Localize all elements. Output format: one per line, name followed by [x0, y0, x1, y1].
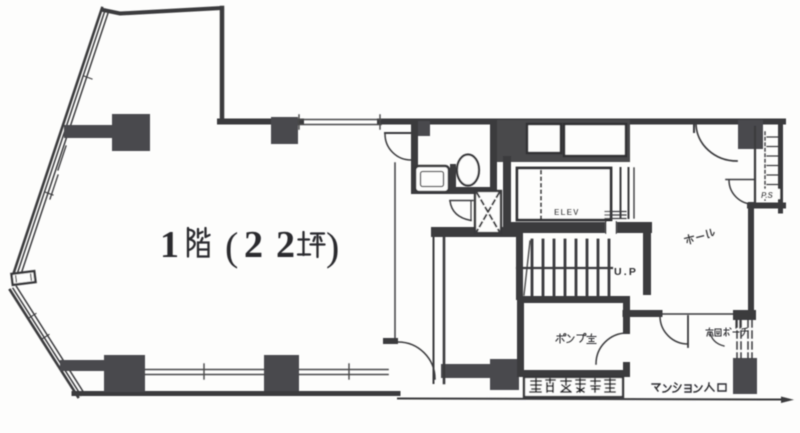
svg-text:2: 2	[276, 224, 295, 266]
svg-text:2: 2	[244, 224, 263, 266]
svg-text:ELEV: ELEV	[554, 208, 580, 217]
svg-text:P.S: P.S	[761, 191, 774, 200]
svg-text:1: 1	[160, 224, 179, 266]
svg-text:(: (	[225, 224, 238, 269]
svg-text:U.P: U.P	[614, 266, 638, 278]
svg-text:): )	[326, 224, 339, 269]
